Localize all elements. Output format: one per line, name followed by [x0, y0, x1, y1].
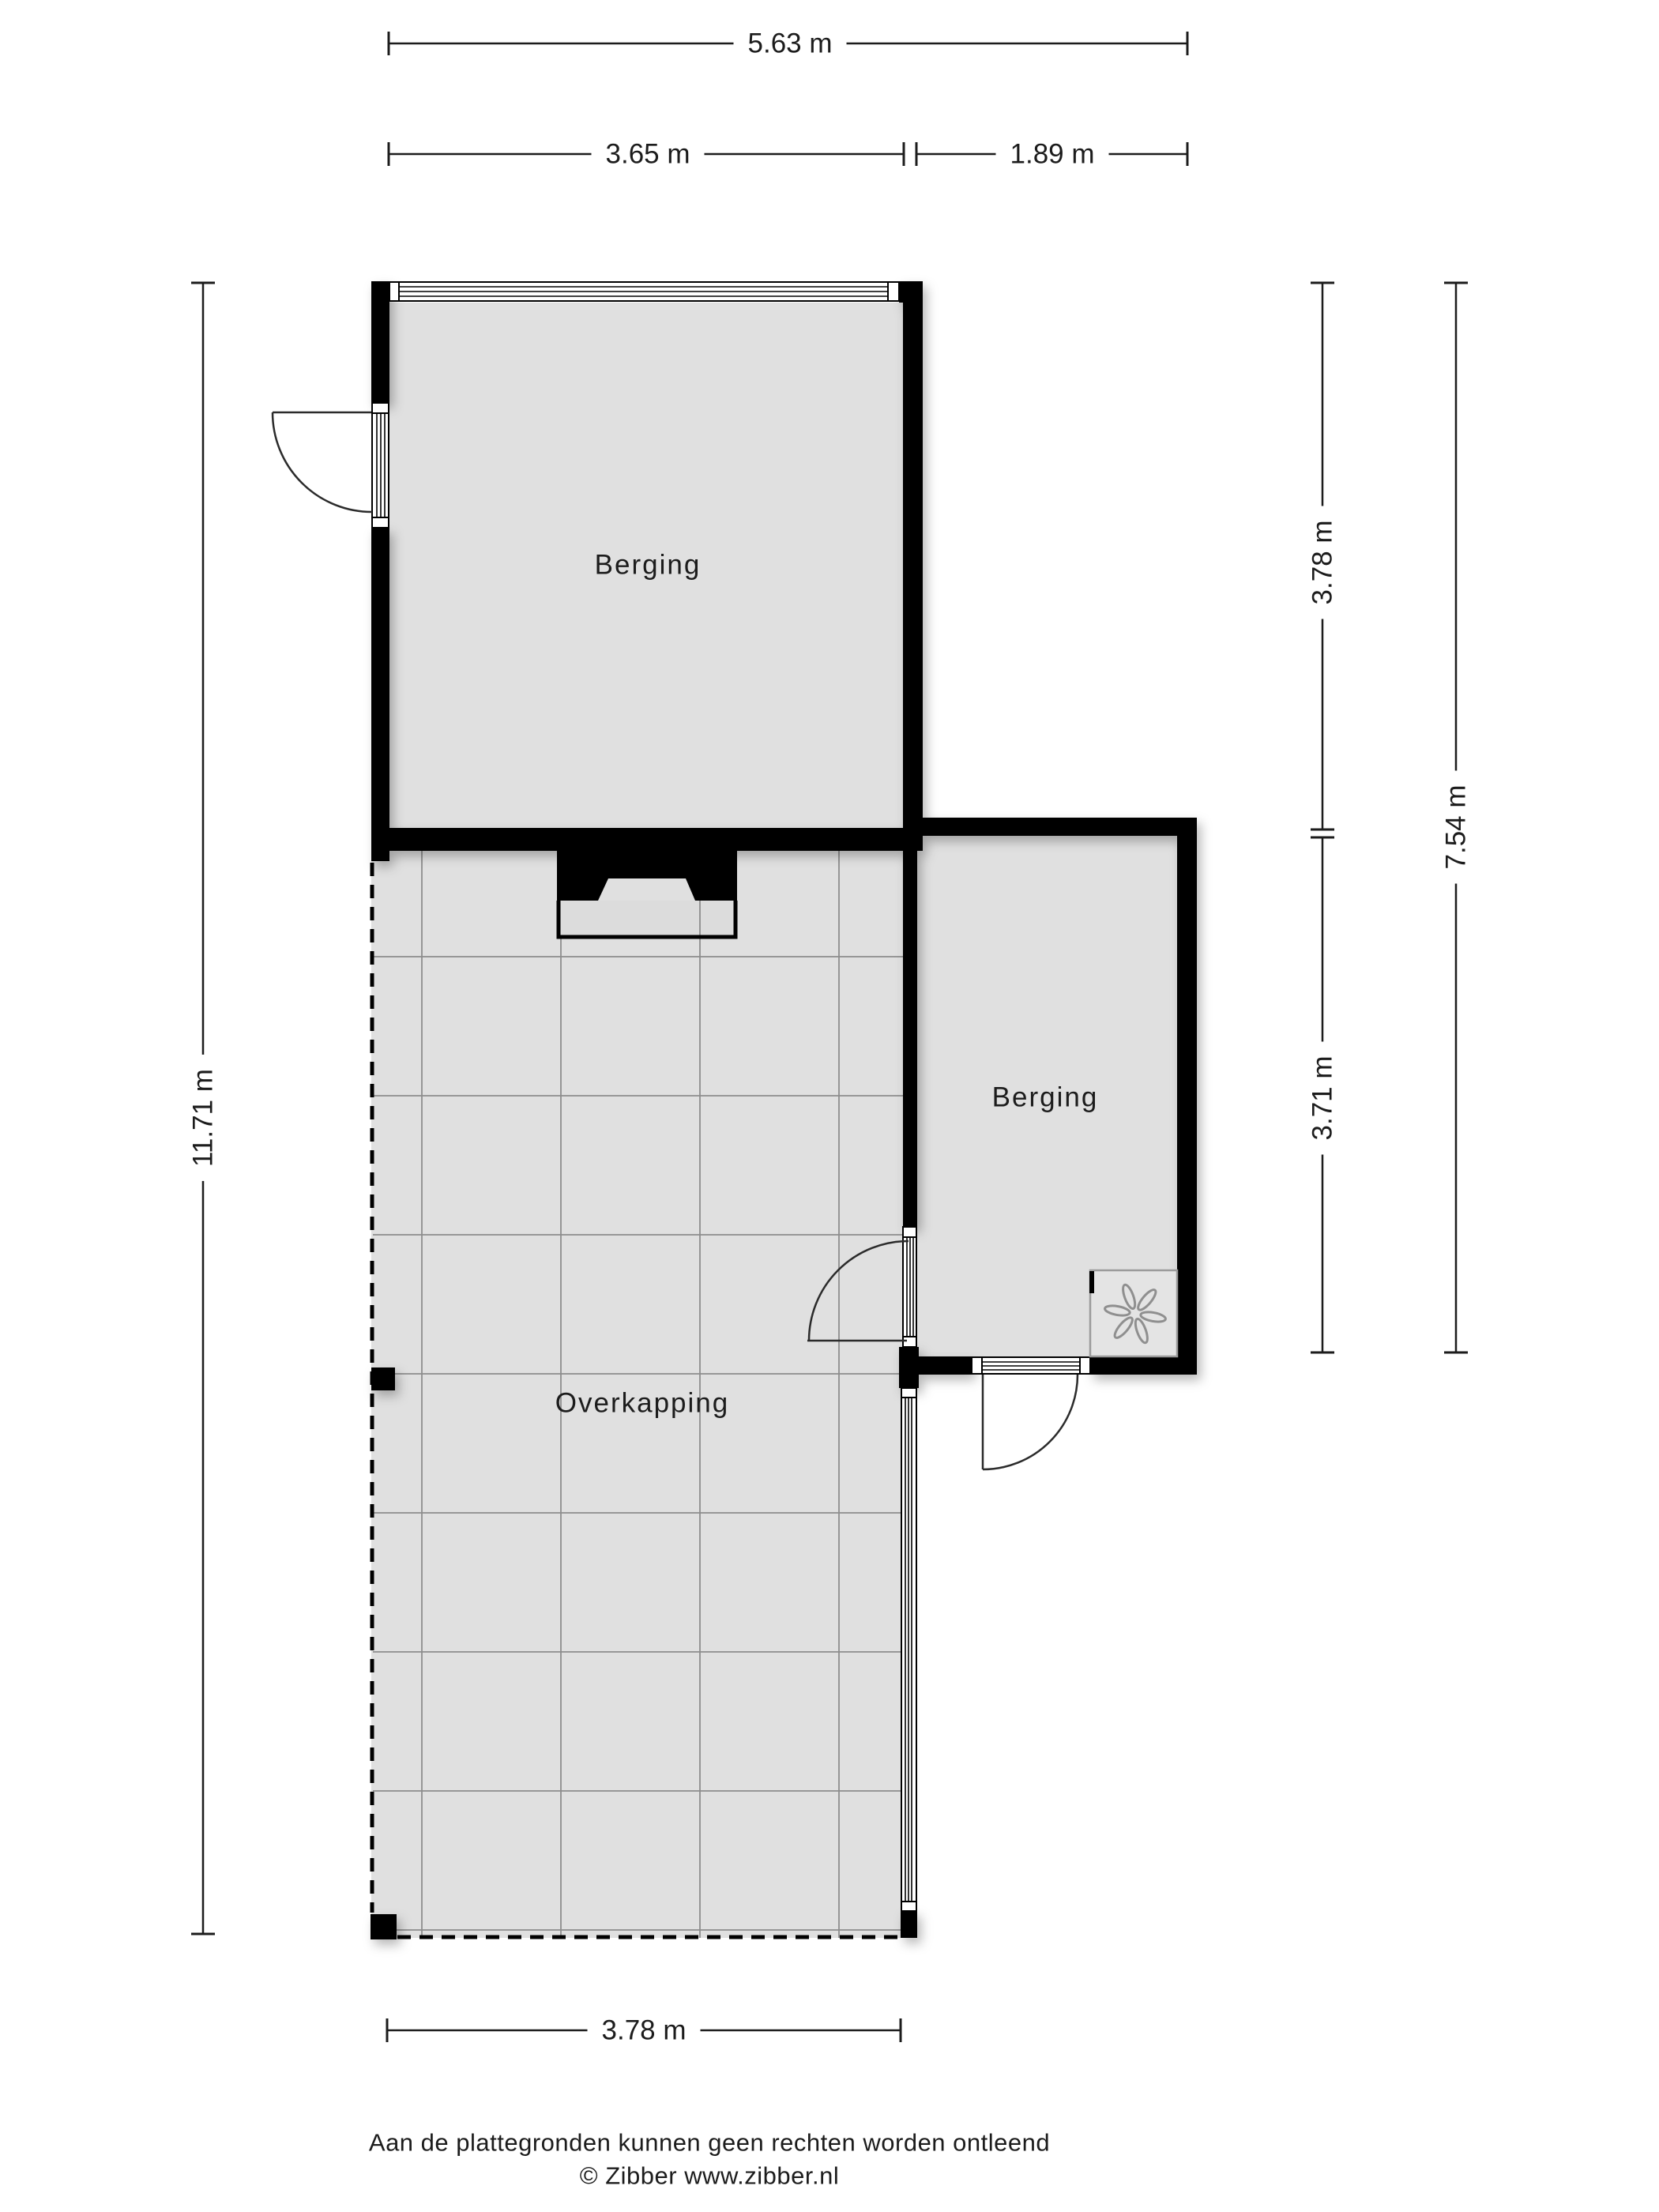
dim-label-top-left: 3.65 m [592, 137, 705, 171]
window-overkapping-side [901, 1388, 916, 1911]
floor-plan-page: 5.63 m 3.65 m 1.89 m 11.71 m 3.78 m 3.71… [0, 0, 1659, 2212]
wall-top-berging-left-lower [371, 528, 389, 861]
post-mid-left [371, 1367, 395, 1390]
dim-label-bottom: 3.78 m [588, 2014, 701, 2048]
post-bottom-left [371, 1914, 397, 1939]
installation-area [1089, 1270, 1177, 1356]
footer-disclaimer: Aan de plattegronden kunnen geen rechten… [369, 2131, 1050, 2155]
dim-label-right-upper: 3.78 m [1306, 506, 1340, 619]
room-floors [371, 303, 1177, 1938]
wall-right-berging-top [923, 818, 1197, 836]
wall-junction-block [899, 1347, 919, 1388]
door-swing-top-berging [273, 412, 372, 512]
room-label-berging-top: Berging [595, 551, 702, 579]
dim-label-left-total: 11.71 m [186, 1055, 220, 1181]
door-swing-berging-bottom [983, 1375, 1078, 1469]
door-panel-left [372, 403, 389, 528]
footer-credit: © Zibber www.zibber.nl [580, 2164, 839, 2188]
floor-plan-drawing [0, 0, 1659, 2212]
wall-top-berging-left-upper [371, 281, 389, 403]
wall-top-berging-right [903, 281, 923, 851]
dim-label-right-total: 7.54 m [1439, 771, 1473, 884]
wall-top-berging-bottom [371, 828, 923, 851]
post-bottom-right [901, 1911, 917, 1938]
wall-right-berging-right [1177, 818, 1197, 1375]
window-top [389, 282, 899, 301]
wall-right-berging-left [903, 851, 917, 1227]
door-panel-berging-bottom [972, 1357, 1090, 1374]
dim-label-top-total: 5.63 m [734, 27, 847, 61]
dim-label-right-lower: 3.71 m [1306, 1042, 1340, 1155]
dim-label-top-right: 1.89 m [996, 137, 1109, 171]
room-label-overkapping: Overkapping [555, 1390, 729, 1417]
wall-right-berging-bottom-right [1090, 1356, 1197, 1375]
room-label-berging-right: Berging [992, 1084, 1099, 1112]
door-panel-berging-left [903, 1227, 916, 1347]
